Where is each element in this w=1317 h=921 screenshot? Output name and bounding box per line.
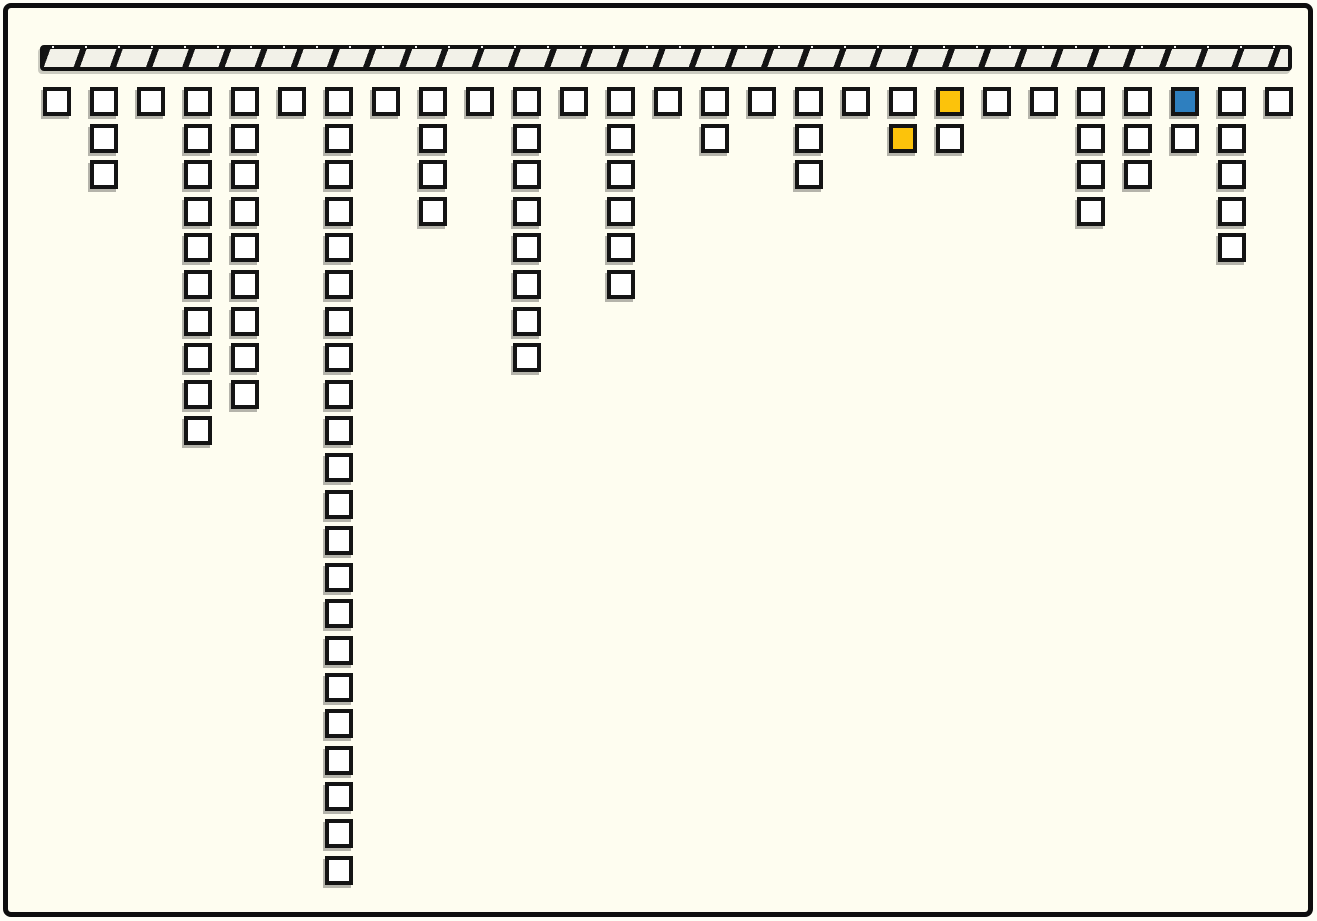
grid-square[interactable] — [325, 160, 353, 189]
grid-square[interactable] — [1124, 124, 1152, 153]
grid-square[interactable] — [325, 233, 353, 262]
grid-square[interactable] — [1077, 87, 1105, 116]
grid-square[interactable] — [701, 124, 729, 153]
grid-square[interactable] — [513, 343, 541, 372]
grid-square[interactable] — [607, 124, 635, 153]
grid-square[interactable] — [419, 160, 447, 189]
grid-square[interactable] — [889, 87, 917, 116]
grid-square[interactable] — [325, 819, 353, 848]
grid-square[interactable] — [231, 87, 259, 116]
grid-square[interactable] — [1030, 87, 1058, 116]
grid-square[interactable] — [842, 87, 870, 116]
grid-square[interactable] — [513, 233, 541, 262]
grid-square[interactable] — [795, 160, 823, 189]
grid-square[interactable] — [607, 160, 635, 189]
grid-square[interactable] — [231, 197, 259, 226]
grid-square[interactable] — [1218, 87, 1246, 116]
grid-square[interactable] — [325, 453, 353, 482]
grid-square[interactable] — [43, 87, 71, 116]
grid-square[interactable] — [607, 270, 635, 299]
grid-square[interactable] — [560, 87, 588, 116]
grid-square[interactable] — [1077, 197, 1105, 226]
grid-square[interactable] — [513, 160, 541, 189]
grid-square[interactable] — [748, 87, 776, 116]
grid-square[interactable] — [325, 380, 353, 409]
grid-square[interactable] — [325, 673, 353, 702]
grid-square[interactable] — [325, 599, 353, 628]
grid-square[interactable] — [325, 124, 353, 153]
grid-square[interactable] — [184, 87, 212, 116]
grid-square[interactable] — [184, 270, 212, 299]
grid-square[interactable] — [325, 270, 353, 299]
grid-square[interactable] — [184, 160, 212, 189]
grid-square[interactable] — [325, 746, 353, 775]
grid-square[interactable] — [325, 856, 353, 885]
grid-square[interactable] — [184, 197, 212, 226]
grid-square[interactable] — [607, 197, 635, 226]
grid-square[interactable] — [936, 124, 964, 153]
grid-square[interactable] — [1077, 160, 1105, 189]
grid-square[interactable] — [1171, 87, 1199, 116]
grid-square[interactable] — [184, 307, 212, 336]
grid-square[interactable] — [325, 490, 353, 519]
grid-square[interactable] — [231, 233, 259, 262]
grid-square[interactable] — [607, 87, 635, 116]
grid-square[interactable] — [1218, 197, 1246, 226]
grid-square[interactable] — [184, 380, 212, 409]
grid-square[interactable] — [607, 233, 635, 262]
grid-square[interactable] — [90, 87, 118, 116]
grid-square[interactable] — [231, 124, 259, 153]
grid-square[interactable] — [795, 87, 823, 116]
grid-square[interactable] — [1218, 233, 1246, 262]
grid-square[interactable] — [1171, 124, 1199, 153]
grid-square[interactable] — [90, 124, 118, 153]
grid-square[interactable] — [325, 782, 353, 811]
board — [3, 3, 1313, 917]
grid-square[interactable] — [513, 87, 541, 116]
grid-square[interactable] — [184, 124, 212, 153]
grid-square[interactable] — [325, 526, 353, 555]
grid-square[interactable] — [513, 124, 541, 153]
grid-square[interactable] — [936, 87, 964, 116]
grid-square[interactable] — [278, 87, 306, 116]
grid-square[interactable] — [1124, 160, 1152, 189]
grid-square[interactable] — [889, 124, 917, 153]
grid-square[interactable] — [184, 343, 212, 372]
grid-square[interactable] — [1077, 124, 1105, 153]
grid-square[interactable] — [231, 160, 259, 189]
grid-square[interactable] — [466, 87, 494, 116]
grid-square[interactable] — [184, 233, 212, 262]
grid-square[interactable] — [419, 87, 447, 116]
grid-square[interactable] — [325, 563, 353, 592]
grid-square[interactable] — [90, 160, 118, 189]
grid-square[interactable] — [231, 343, 259, 372]
grid-square[interactable] — [513, 197, 541, 226]
grid-square[interactable] — [137, 87, 165, 116]
grid-square[interactable] — [325, 709, 353, 738]
grid-square[interactable] — [1218, 124, 1246, 153]
grid-square[interactable] — [184, 416, 212, 445]
grid-square[interactable] — [325, 343, 353, 372]
grid-square[interactable] — [325, 307, 353, 336]
grid-square[interactable] — [325, 197, 353, 226]
grid-square[interactable] — [513, 307, 541, 336]
grid-square[interactable] — [701, 87, 729, 116]
hatched-ceiling-bar — [40, 45, 1292, 71]
grid-square[interactable] — [654, 87, 682, 116]
grid-square[interactable] — [513, 270, 541, 299]
grid-square[interactable] — [1124, 87, 1152, 116]
grid-square[interactable] — [419, 124, 447, 153]
grid-square[interactable] — [1218, 160, 1246, 189]
grid-square[interactable] — [325, 87, 353, 116]
grid-square[interactable] — [231, 307, 259, 336]
grid-square[interactable] — [419, 197, 447, 226]
grid-square[interactable] — [983, 87, 1011, 116]
grid-square[interactable] — [1265, 87, 1293, 116]
grid-square[interactable] — [372, 87, 400, 116]
grid-square[interactable] — [795, 124, 823, 153]
grid-square[interactable] — [325, 416, 353, 445]
grid-square[interactable] — [231, 380, 259, 409]
grid-square[interactable] — [231, 270, 259, 299]
grid-square[interactable] — [325, 636, 353, 665]
